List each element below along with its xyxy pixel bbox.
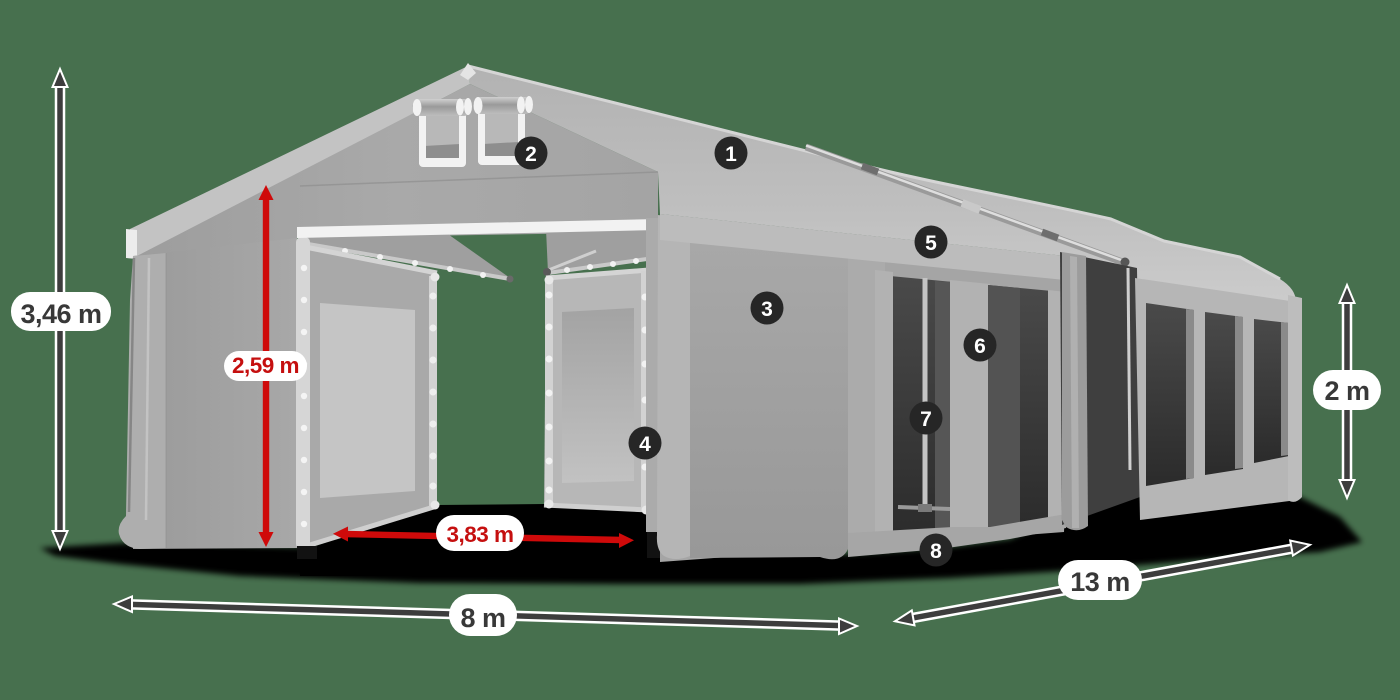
svg-text:3,83 m: 3,83 m <box>446 522 513 547</box>
svg-text:2: 2 <box>525 143 537 166</box>
svg-text:2,59 m: 2,59 m <box>232 353 299 378</box>
svg-text:7: 7 <box>920 408 932 431</box>
svg-text:8: 8 <box>930 540 942 563</box>
svg-text:5: 5 <box>925 232 937 255</box>
svg-text:8 m: 8 m <box>460 603 505 633</box>
svg-text:6: 6 <box>974 335 986 358</box>
svg-text:13 m: 13 m <box>1070 567 1130 597</box>
svg-text:3: 3 <box>761 298 773 321</box>
svg-text:3,46 m: 3,46 m <box>20 299 101 329</box>
svg-text:4: 4 <box>639 433 651 456</box>
svg-text:1: 1 <box>725 143 737 166</box>
svg-text:2 m: 2 m <box>1324 376 1369 406</box>
